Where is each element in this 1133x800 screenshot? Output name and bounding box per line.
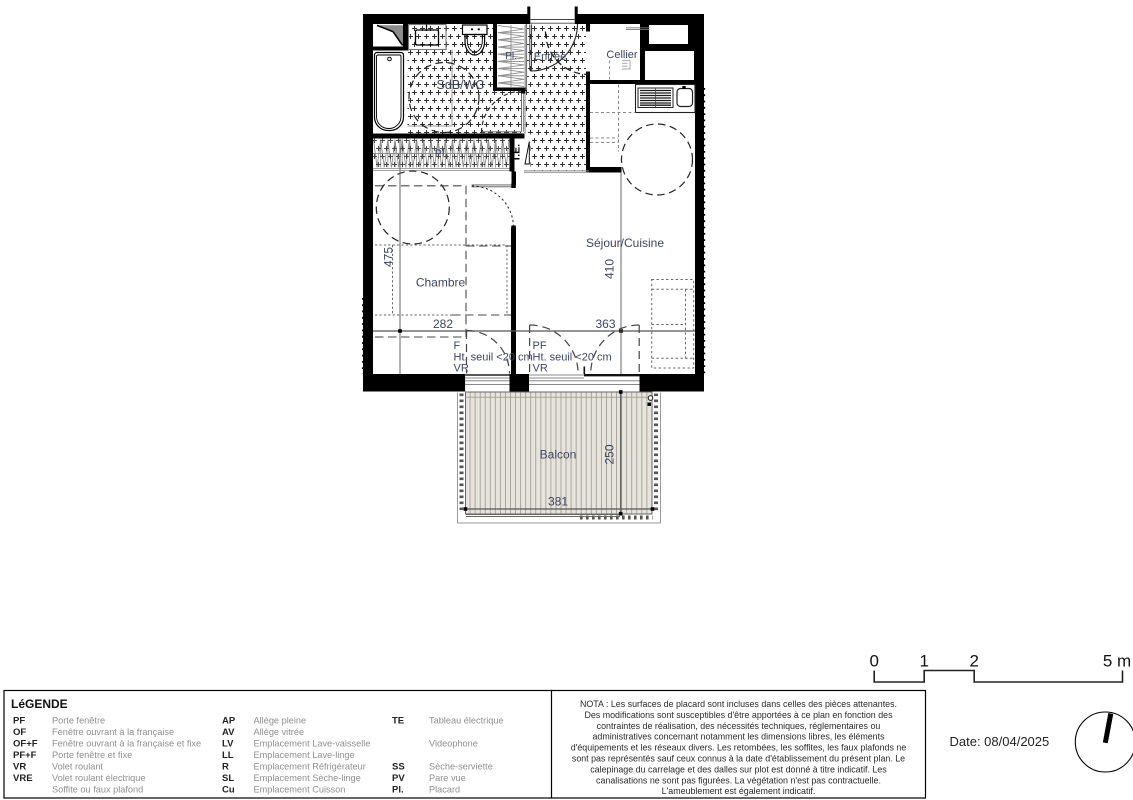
- svg-text:381: 381: [548, 495, 568, 509]
- svg-text:canalisations ne sont pas figu: canalisations ne sont pas figurées. La v…: [596, 775, 881, 785]
- svg-text:Placard: Placard: [429, 785, 460, 795]
- svg-text:Cu: Cu: [222, 785, 235, 796]
- svg-text:AP: AP: [222, 716, 236, 727]
- svg-text:contraintes de réalisation, de: contraintes de réalisation, des nécessit…: [597, 721, 881, 731]
- svg-text:calepinage du carrelage et des: calepinage du carrelage et des dalles su…: [590, 764, 887, 774]
- svg-text:2: 2: [969, 652, 978, 671]
- svg-text:PV: PV: [392, 773, 405, 784]
- svg-text:Cellier: Cellier: [606, 49, 638, 61]
- svg-text:sont pas représentés sauf ceux: sont pas représentés sauf ceux connus à …: [572, 754, 905, 764]
- svg-text:PF: PF: [533, 340, 547, 352]
- svg-text:SS: SS: [392, 762, 405, 773]
- svg-text:282: 282: [433, 317, 453, 331]
- svg-text:250: 250: [603, 444, 617, 464]
- svg-text:Pl.: Pl.: [505, 51, 517, 62]
- svg-text:Séjour/Cuisine: Séjour/Cuisine: [586, 236, 664, 250]
- svg-text:TE: TE: [392, 716, 404, 727]
- svg-text:SL: SL: [222, 773, 234, 784]
- svg-text:LéGENDE: LéGENDE: [11, 697, 68, 711]
- svg-text:Volet roulant électrique: Volet roulant électrique: [52, 773, 145, 783]
- svg-text:Pl.: Pl.: [435, 148, 448, 160]
- svg-text:administratives concernant not: administratives concernant notamment les…: [592, 732, 885, 742]
- svg-text:5 m: 5 m: [1103, 652, 1131, 671]
- svg-text:Porte fenêtre: Porte fenêtre: [52, 716, 105, 726]
- svg-text:Volet roulant: Volet roulant: [52, 762, 104, 772]
- svg-text:Allège pleine: Allège pleine: [254, 716, 307, 726]
- svg-text:Fenêtre ouvrant à la française: Fenêtre ouvrant à la française: [52, 727, 174, 737]
- svg-text:Chambre: Chambre: [416, 276, 466, 290]
- svg-text:Emplacement Lave-linge: Emplacement Lave-linge: [254, 750, 355, 760]
- svg-text:VR: VR: [454, 363, 469, 375]
- svg-text:LV: LV: [222, 739, 234, 750]
- svg-text:Sèche-serviette: Sèche-serviette: [429, 762, 493, 772]
- svg-text:VR: VR: [533, 363, 548, 375]
- svg-text:Emplacement Réfrigérateur: Emplacement Réfrigérateur: [254, 762, 366, 772]
- svg-text:PF: PF: [13, 716, 25, 727]
- svg-text:PF+F: PF+F: [13, 750, 37, 761]
- svg-text:L'ameublement est également in: L'ameublement est également indicatif.: [662, 786, 816, 796]
- svg-text:F: F: [454, 340, 461, 352]
- svg-text:VR: VR: [13, 762, 26, 773]
- svg-text:Porte fenêtre et fixe: Porte fenêtre et fixe: [52, 750, 132, 760]
- svg-text:Pare vue: Pare vue: [429, 773, 466, 783]
- svg-text:Tableau électrique: Tableau électrique: [429, 716, 504, 726]
- svg-text:475: 475: [382, 247, 396, 267]
- svg-text:OF+F: OF+F: [13, 739, 38, 750]
- svg-text:363: 363: [595, 317, 615, 331]
- svg-text:VRE: VRE: [13, 773, 33, 784]
- svg-text:Des modifications sont suscept: Des modifications sont susceptibles d'êt…: [584, 710, 893, 720]
- svg-text:Allège vitrée: Allège vitrée: [254, 727, 305, 737]
- svg-text:Fenêtre ouvrant à la française: Fenêtre ouvrant à la française et fixe: [52, 739, 201, 749]
- svg-text:d'équipements et les réseaux d: d'équipements et les réseaux divers. Les…: [571, 743, 907, 753]
- svg-text:Date: 08/04/2025: Date: 08/04/2025: [950, 734, 1050, 749]
- svg-text:Soffite ou faux plafond: Soffite ou faux plafond: [52, 785, 143, 795]
- svg-text:Balcon: Balcon: [540, 448, 577, 462]
- svg-text:SdB/WC: SdB/WC: [437, 78, 485, 92]
- svg-text:Emplacement Lave-vaisselle: Emplacement Lave-vaisselle: [254, 739, 371, 749]
- svg-text:1: 1: [919, 652, 928, 671]
- svg-text:Entrée: Entrée: [534, 51, 566, 63]
- svg-text:Pl.: Pl.: [392, 785, 404, 796]
- svg-text:Emplacement Cuisson: Emplacement Cuisson: [254, 785, 346, 795]
- svg-text:T.E.: T.E.: [511, 144, 523, 162]
- svg-text:NOTA : Les surfaces de placard: NOTA : Les surfaces de placard sont incl…: [580, 699, 897, 709]
- svg-text:0: 0: [869, 652, 878, 671]
- svg-text:Videophone: Videophone: [429, 739, 478, 749]
- svg-text:410: 410: [603, 259, 617, 279]
- svg-text:Emplacement Sèche-linge: Emplacement Sèche-linge: [254, 773, 361, 783]
- svg-text:OF: OF: [13, 727, 26, 738]
- svg-text:R: R: [222, 762, 229, 773]
- svg-text:AV: AV: [222, 727, 235, 738]
- svg-text:LL: LL: [222, 750, 234, 761]
